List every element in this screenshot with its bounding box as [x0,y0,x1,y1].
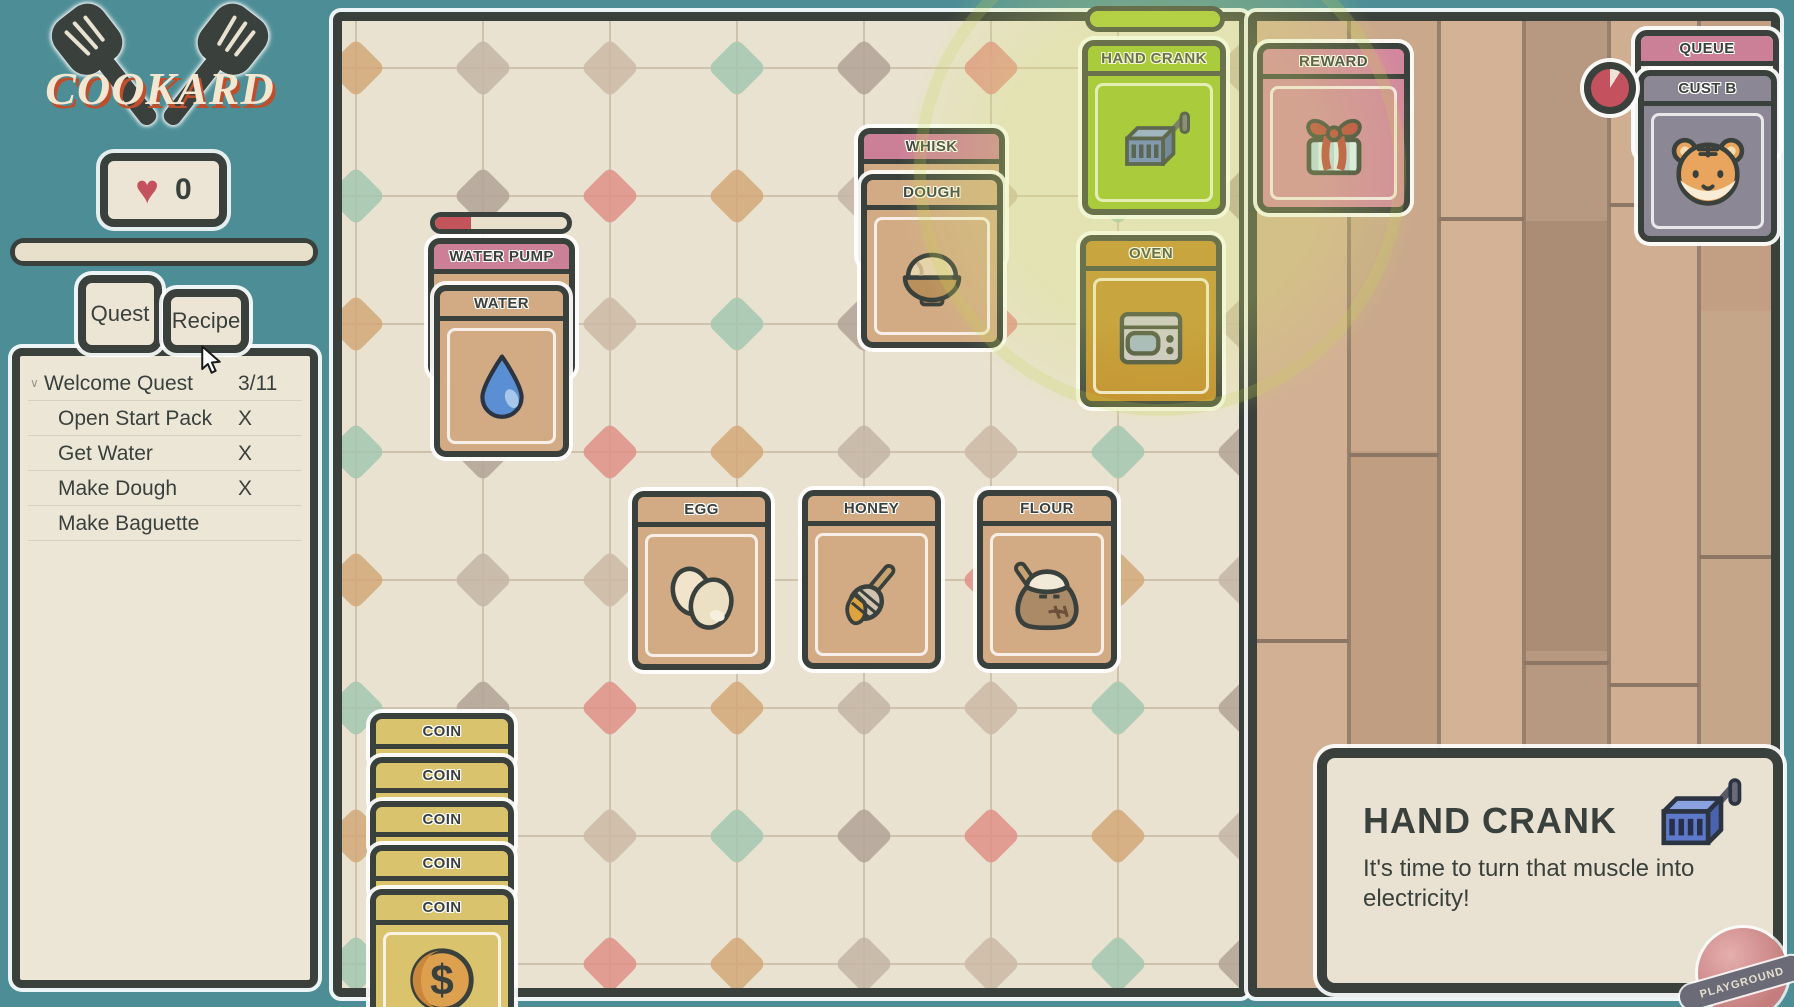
card-title: COIN [376,851,508,881]
quest-item: Make Dough X [28,471,302,506]
tab-recipe[interactable]: Recipe [163,289,249,353]
hearts-count: 0 [175,173,192,207]
floor-diamond [1215,934,1248,993]
card-title: WATER [440,291,563,321]
floor-diamond [707,166,766,225]
floor-diamond [580,934,639,993]
xp-progress-bar [10,238,318,266]
water-pump-progress [430,212,572,234]
chevron-down-icon: ∨ [30,366,39,401]
card-reward[interactable]: REWARD [1257,43,1410,213]
quest-header-row[interactable]: ∨ Welcome Quest 3/11 [28,366,302,401]
floor-diamond [707,806,766,865]
floor-diamond [707,294,766,353]
floor-diamond [707,934,766,993]
card-title: EGG [638,497,765,527]
eggs-icon [664,561,740,631]
card-flour[interactable]: FLOUR [977,490,1117,669]
quest-item-label: Make Dough [58,477,177,500]
card-oven[interactable]: OVEN [1080,235,1222,407]
heart-icon: ♥ [135,170,159,210]
card-title: HONEY [808,496,935,526]
water-drop-icon [474,352,530,420]
floor-diamond [834,934,893,993]
quest-item-label: Make Baguette [58,512,199,535]
pump-progress-fill [435,217,471,229]
tab-recipe-label: Recipe [172,308,240,334]
floor-diamond [1215,678,1248,737]
quest-progress: 3/11 [238,366,277,401]
floor-diamond [580,38,639,97]
quest-item-status: X [238,436,252,471]
card-title: COIN [376,719,508,749]
floor-diamond [961,806,1020,865]
dough-bowl-icon [896,243,968,309]
card-title: DOUGH [867,180,997,210]
quest-item: Get Water X [28,436,302,471]
quest-item: Open Start Pack X [28,401,302,436]
card-cust-b[interactable]: CUST B [1638,70,1777,242]
card-title: COIN [376,895,508,925]
coin-dollar-icon: $ [403,941,481,1007]
hearts-counter: ♥ 0 [100,153,227,227]
hand-crank-icon [1115,110,1193,176]
card-title: FLOUR [983,496,1111,526]
floor-diamond [1088,806,1147,865]
floor-diamond [580,550,639,609]
quest-item-label: Get Water [58,442,153,465]
queue-timer [1584,62,1636,114]
tiger-face-icon [1669,134,1747,208]
floor-diamond [961,934,1020,993]
stage-progress-bar [1085,6,1225,32]
floor-diamond [961,422,1020,481]
honey-dipper-icon [834,560,910,630]
tab-quest[interactable]: Quest [78,275,162,353]
floor-diamond [333,422,386,481]
floor-diamond [580,806,639,865]
logo-title: COOKARD [28,62,292,115]
card-dough[interactable]: DOUGH [861,174,1003,348]
card-title: HAND CRANK [1088,46,1220,76]
floor-diamond [961,678,1020,737]
card-title: OVEN [1086,241,1216,271]
floor-diamond [333,550,386,609]
quest-item-status: X [238,401,252,436]
floor-diamond [333,38,386,97]
floor-diamond [707,678,766,737]
floor-diamond [453,38,512,97]
card-title: COIN [376,807,508,837]
floor-diamond [1088,678,1147,737]
floor-diamond [1088,934,1147,993]
floor-diamond [834,678,893,737]
floor-diamond [707,38,766,97]
floor-diamond [580,166,639,225]
oven-icon [1115,304,1187,368]
card-tooltip: HAND CRANK It's time to turn that muscle… [1317,748,1783,993]
card-title: WHISK [864,134,999,164]
floor-diamond [834,422,893,481]
card-title: REWARD [1263,49,1404,79]
hand-crank-icon [1649,776,1745,858]
svg-text:$: $ [430,957,454,1004]
floor-diamond [580,678,639,737]
quest-item-status: X [238,471,252,506]
floor-diamond [453,550,512,609]
floor-diamond [333,166,386,225]
card-honey[interactable]: HONEY [802,490,941,669]
tooltip-description: It's time to turn that muscle into elect… [1363,854,1759,914]
card-coin-5[interactable]: COIN $ [370,889,514,1007]
game-logo: COOKARD [28,0,292,152]
flour-sack-icon [1008,559,1086,631]
floor-diamond [1215,422,1248,481]
floor-diamond [834,806,893,865]
floor-diamond [707,422,766,481]
floor-diamond [961,38,1020,97]
quest-item-label: Open Start Pack [58,407,212,430]
floor-diamond [1088,422,1147,481]
card-title: COIN [376,763,508,793]
card-title: WATER PUMP [434,244,569,274]
quest-item: Make Baguette [28,506,302,541]
gift-icon [1296,107,1372,179]
floor-diamond [1215,550,1248,609]
tooltip-title: HAND CRANK [1363,800,1617,842]
floor-diamond [1215,806,1248,865]
card-title: CUST B [1644,76,1771,106]
quest-panel: ∨ Welcome Quest 3/11 Open Start Pack X G… [12,348,318,988]
floor-diamond [333,294,386,353]
floor-diamond [834,38,893,97]
card-egg[interactable]: EGG [632,491,771,670]
floor-diamond [580,422,639,481]
quest-title: Welcome Quest [44,372,193,395]
game-screen: { "logo": { "title": "COOKARD" }, "hud":… [0,0,1794,1007]
card-hand-crank[interactable]: HAND CRANK [1082,40,1226,215]
top-progress-fill [1090,11,1220,27]
card-title: QUEUE [1641,36,1773,66]
floor-diamond [580,294,639,353]
tab-quest-label: Quest [91,301,150,327]
card-water[interactable]: WATER [434,285,569,457]
